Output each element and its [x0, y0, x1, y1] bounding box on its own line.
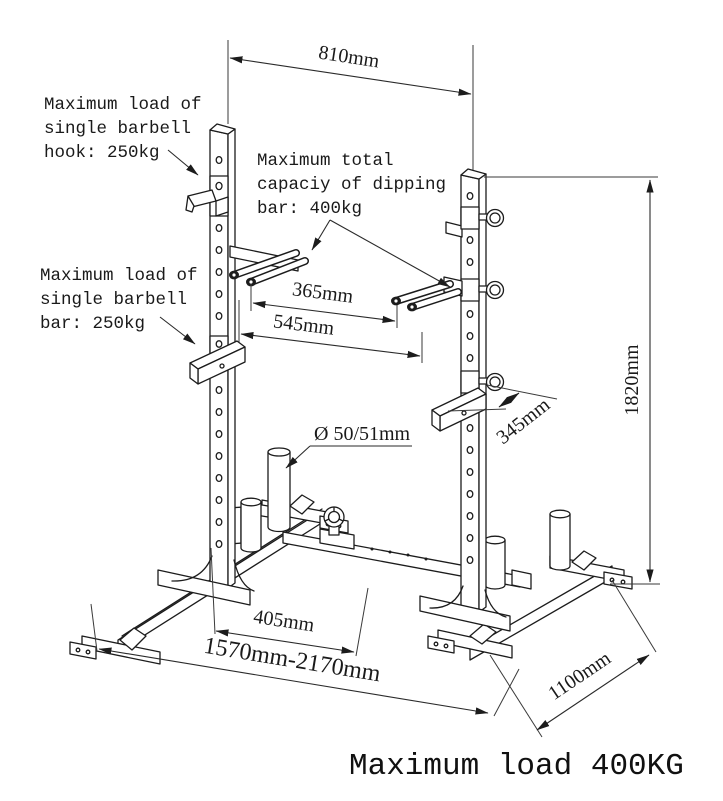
- label-bar-load: Maximum load of single barbell bar: 250k…: [40, 266, 198, 344]
- dim-base-inner-text: 405mm: [252, 606, 316, 637]
- label-dipping-line2: capaciy of dipping: [257, 175, 446, 195]
- label-bar-load-line2: single barbell: [40, 290, 187, 310]
- dim-dip-outer-text: 545mm: [272, 310, 336, 339]
- dim-base-width-text: 1570mm-2170mm: [202, 633, 383, 688]
- footer-max-load: Maximum load 400KG: [349, 749, 684, 784]
- barbell-hook-left: [186, 176, 228, 216]
- dimension-dip-outer: 545mm: [239, 300, 422, 363]
- dim-arm-depth-text: 345mm: [492, 394, 554, 449]
- label-dipping-line3: bar: 400kg: [257, 199, 362, 219]
- label-bar-load-line3: bar: 250kg: [40, 314, 145, 334]
- label-post-diameter: Ø 50/51mm: [286, 423, 412, 468]
- dim-height-text: 1820mm: [621, 344, 643, 416]
- label-hook-load: Maximum load of single barbell hook: 250…: [44, 95, 202, 175]
- dimension-base-depth: 1100mm: [490, 580, 656, 737]
- weight-post-right-near: [485, 536, 505, 589]
- label-hook-load-line1: Maximum load of: [44, 95, 202, 115]
- rack-diagram-page: 810mm 1820mm 365mm 545mm 345mm 405mm 157…: [0, 0, 723, 801]
- barbell-hook-right-tab: [446, 222, 462, 237]
- weight-post-right-far: [550, 510, 570, 570]
- weight-post-left-tall: [268, 448, 290, 532]
- base-frame: [70, 495, 632, 664]
- dipping-bars-right: [391, 277, 462, 311]
- rack-diagram: 810mm 1820mm 365mm 545mm 345mm 405mm 157…: [0, 0, 723, 801]
- label-hook-load-line3: hook: 250kg: [44, 143, 160, 163]
- dim-base-depth-text: 1100mm: [544, 647, 615, 705]
- label-dipping-line1: Maximum total: [257, 151, 394, 171]
- dim-dip-inner-text: 365mm: [291, 278, 355, 308]
- label-hook-load-line2: single barbell: [44, 119, 191, 139]
- dim-top-width-text: 810mm: [317, 42, 381, 73]
- dimension-height: 1820mm: [484, 177, 660, 584]
- label-post-diameter-text: Ø 50/51mm: [314, 423, 411, 445]
- label-bar-load-line1: Maximum load of: [40, 266, 198, 286]
